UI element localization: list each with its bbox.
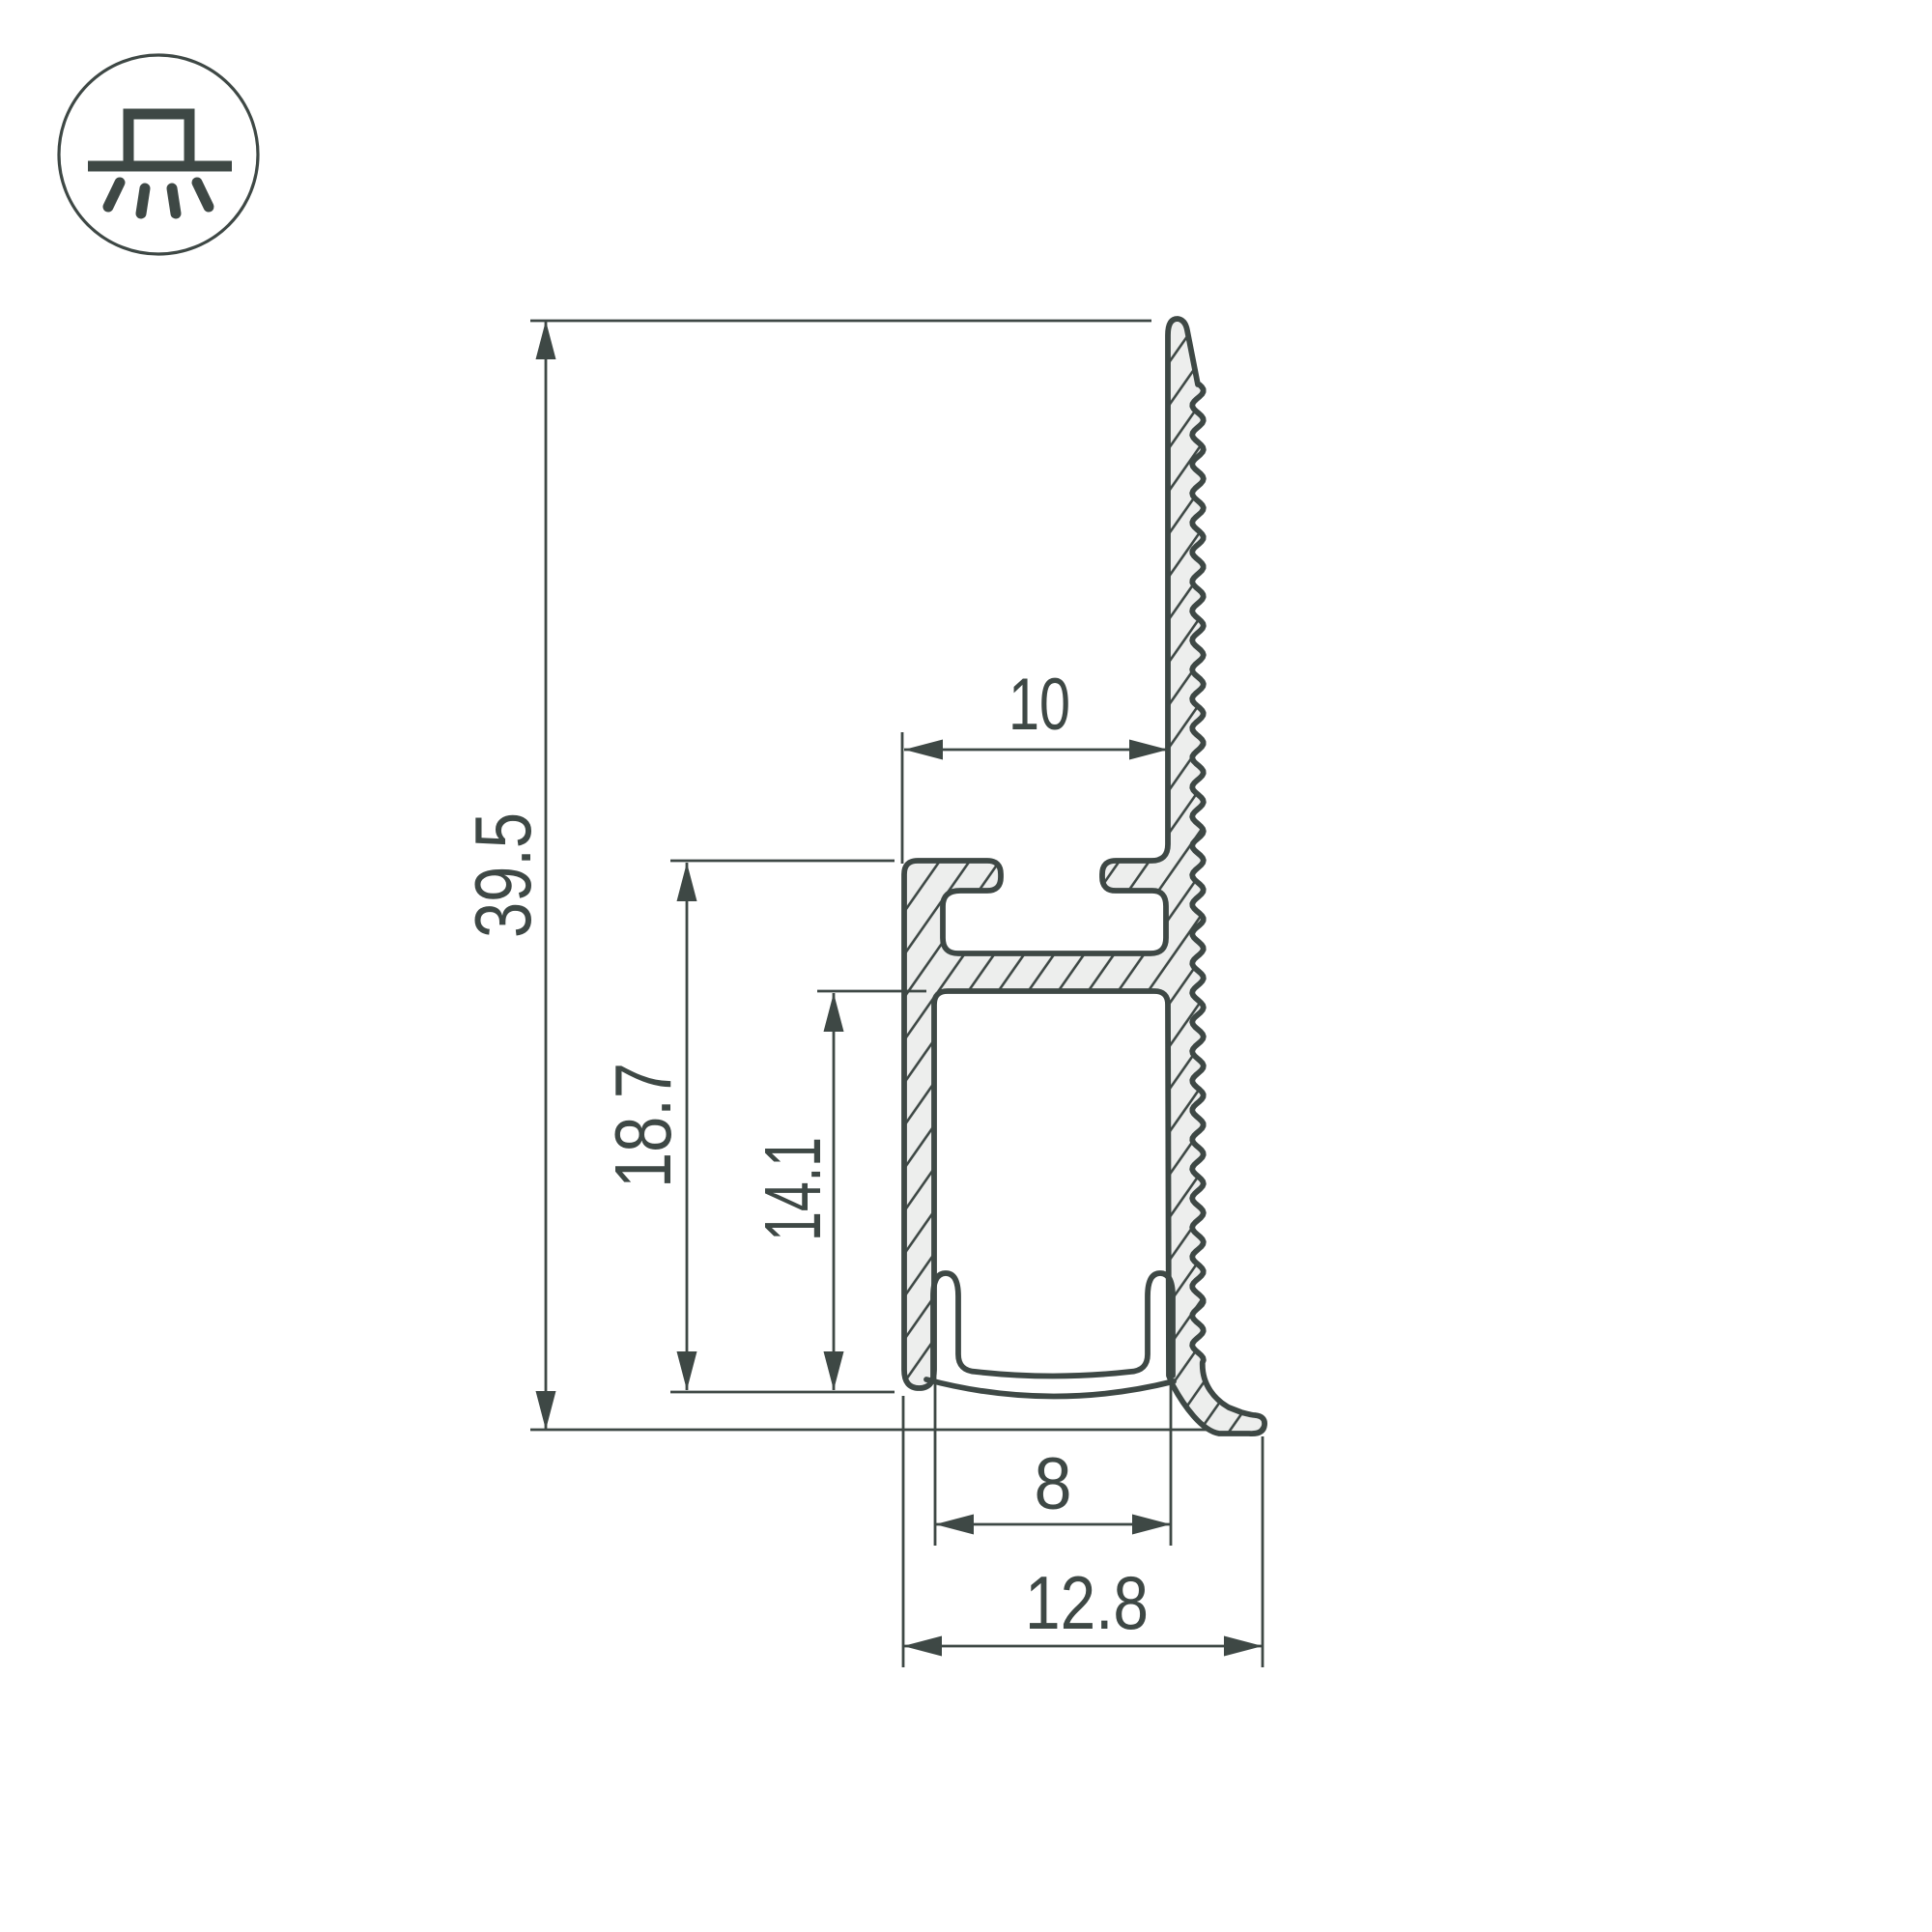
svg-text:18.7: 18.7 [598, 1063, 688, 1188]
svg-text:10: 10 [1009, 664, 1070, 746]
svg-text:14.1: 14.1 [748, 1137, 838, 1241]
svg-text:8: 8 [1035, 1443, 1072, 1525]
svg-text:12.8: 12.8 [1025, 1560, 1149, 1645]
svg-text:39.5: 39.5 [458, 812, 548, 938]
